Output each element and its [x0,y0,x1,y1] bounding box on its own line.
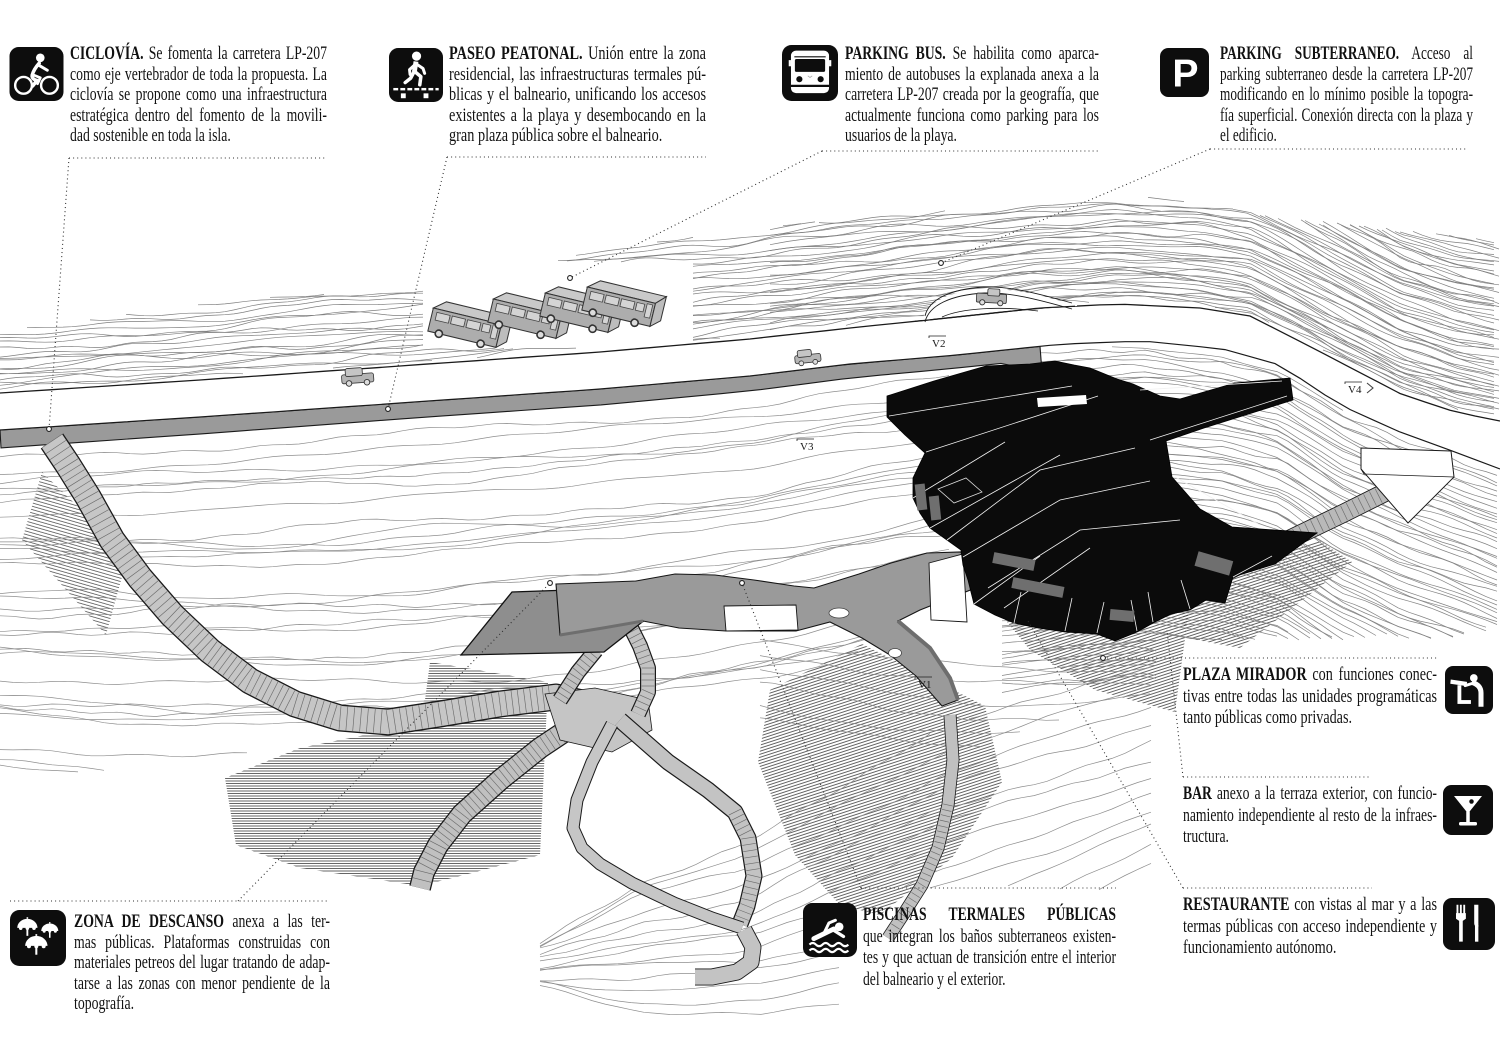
svg-text:V3: V3 [800,441,814,453]
svg-text:V1: V1 [918,679,931,691]
svg-text:P: P [1172,53,1198,96]
svg-text:V4: V4 [1348,384,1362,396]
svg-text:V2: V2 [932,338,945,350]
